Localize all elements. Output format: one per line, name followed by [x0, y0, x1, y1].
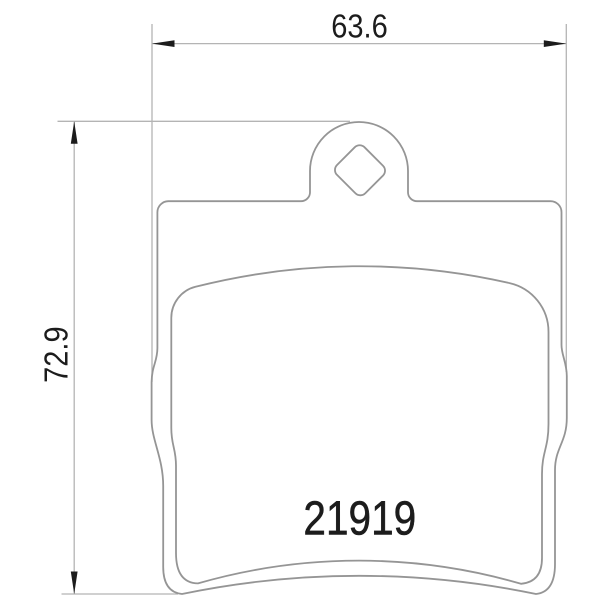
svg-text:72.9: 72.9 [38, 326, 75, 383]
svg-text:63.6: 63.6 [331, 8, 388, 45]
svg-text:21919: 21919 [303, 492, 416, 545]
